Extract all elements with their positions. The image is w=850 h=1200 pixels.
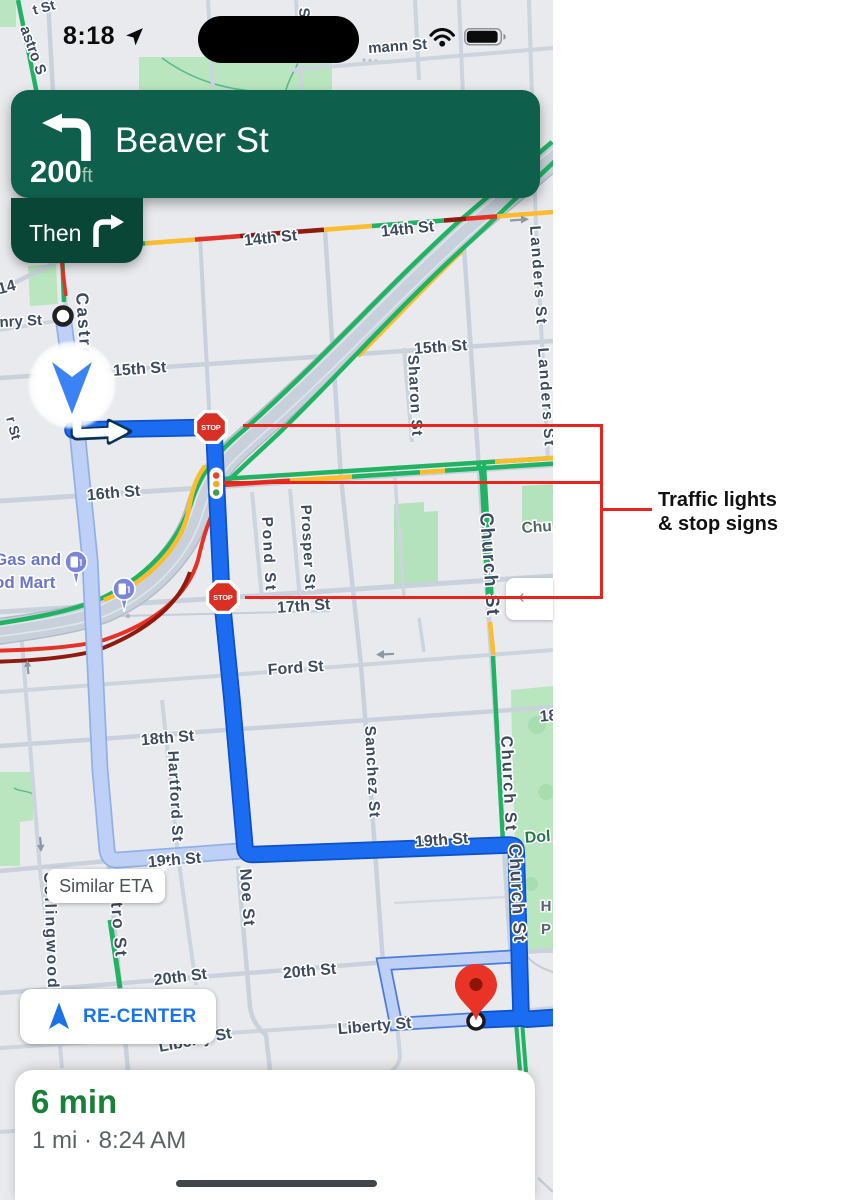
svg-text:14th St: 14th St bbox=[380, 218, 435, 241]
svg-text:Sanchez St: Sanchez St bbox=[361, 725, 383, 818]
svg-text:18th St: 18th St bbox=[140, 728, 195, 750]
svg-text:Landers St: Landers St bbox=[526, 225, 550, 326]
svg-text:Landers St: Landers St bbox=[534, 347, 553, 448]
svg-text:Church St: Church St bbox=[475, 512, 503, 617]
svg-text:Noe St: Noe St bbox=[236, 868, 258, 927]
svg-text:16th St: 16th St bbox=[86, 483, 141, 505]
svg-text:Ford St: Ford St bbox=[267, 658, 325, 679]
svg-text:H: H bbox=[541, 898, 552, 915]
svg-text:Liberty St: Liberty St bbox=[337, 1015, 413, 1038]
svg-text:14th St: 14th St bbox=[243, 227, 298, 250]
svg-text:Hartford St: Hartford St bbox=[164, 750, 186, 843]
svg-text:Gas and: Gas and bbox=[0, 550, 61, 569]
svg-text:od Mart: od Mart bbox=[0, 573, 56, 592]
svg-text:18: 18 bbox=[539, 707, 553, 725]
svg-text:20th St: 20th St bbox=[153, 966, 209, 989]
svg-text:astro S: astro S bbox=[16, 24, 49, 78]
svg-text:15th St: 15th St bbox=[112, 359, 167, 380]
svg-text:nry St: nry St bbox=[0, 312, 42, 331]
svg-text:r St: r St bbox=[3, 415, 25, 442]
svg-text:17th St: 17th St bbox=[276, 596, 331, 617]
svg-text:P: P bbox=[541, 921, 551, 938]
svg-text:Prosper St: Prosper St bbox=[297, 504, 318, 591]
svg-text:Chu: Chu bbox=[521, 518, 552, 537]
svg-text:20th St: 20th St bbox=[282, 961, 337, 983]
svg-text:t St: t St bbox=[31, 0, 57, 18]
svg-text:Dol: Dol bbox=[524, 828, 551, 847]
